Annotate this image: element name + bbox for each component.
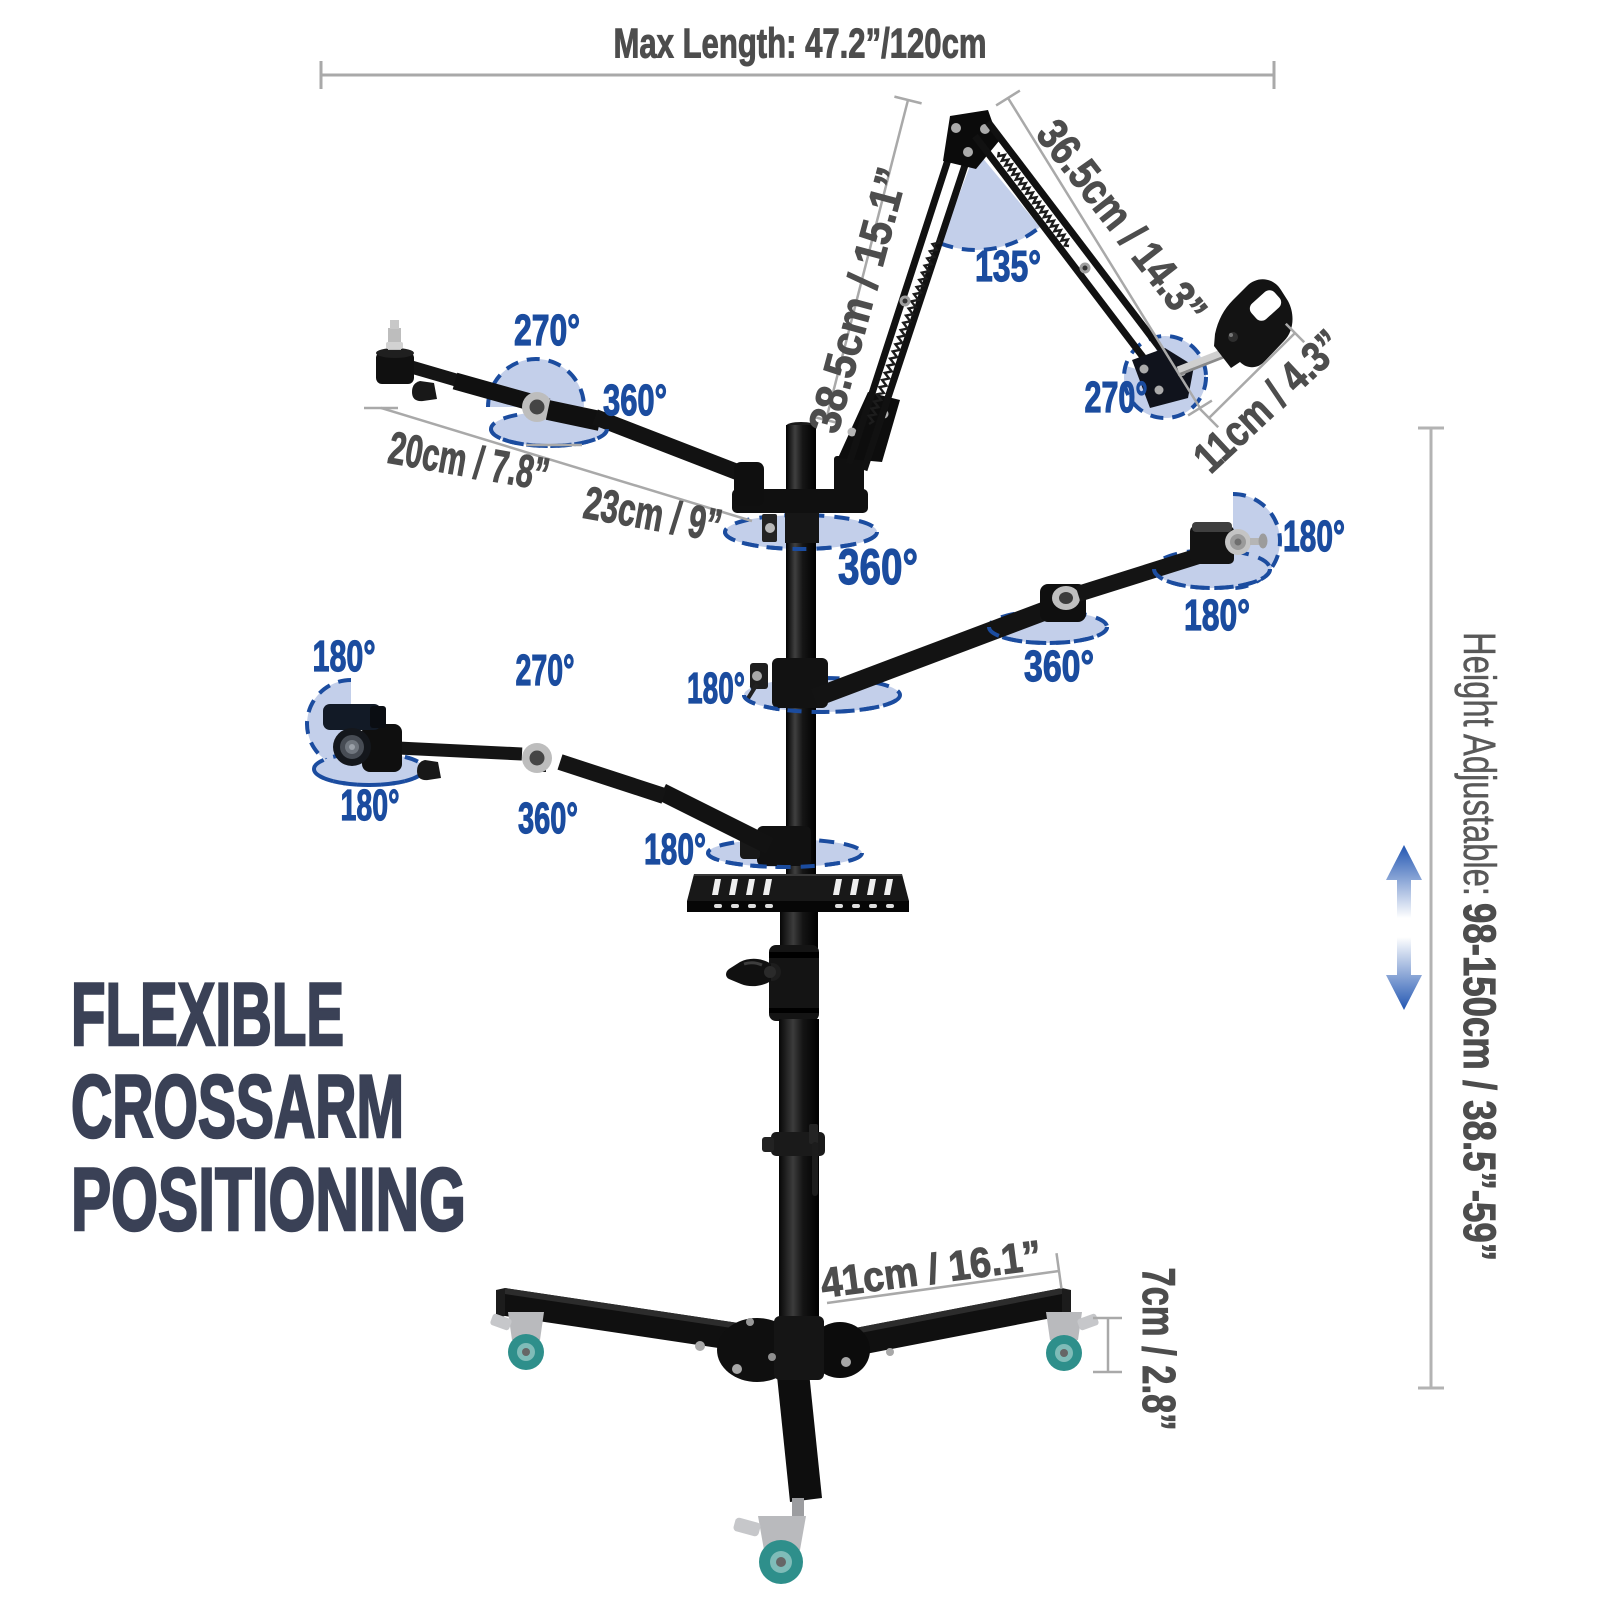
svg-text:98-150cm / 38.5”-59”: 98-150cm / 38.5”-59”	[1454, 903, 1505, 1261]
svg-text:180°: 180°	[313, 632, 376, 681]
svg-text:180°: 180°	[1283, 512, 1345, 561]
svg-text:360°: 360°	[838, 539, 918, 595]
svg-text:135°: 135°	[975, 242, 1041, 291]
svg-text:CROSSARM: CROSSARM	[71, 1056, 404, 1156]
svg-text:360°: 360°	[603, 376, 667, 425]
svg-text:FLEXIBLE: FLEXIBLE	[71, 964, 344, 1064]
svg-text:Max Length: 47.2”/120cm: Max Length: 47.2”/120cm	[614, 19, 987, 66]
svg-text:180°: 180°	[687, 664, 745, 713]
svg-text:7cm / 2.8”: 7cm / 2.8”	[1133, 1268, 1185, 1431]
svg-text:Height Adjustable:: Height Adjustable:	[1454, 632, 1505, 896]
svg-text:POSITIONING: POSITIONING	[71, 1149, 466, 1249]
svg-text:180°: 180°	[1184, 591, 1250, 640]
svg-text:270°: 270°	[514, 306, 580, 355]
svg-text:180°: 180°	[341, 781, 400, 830]
svg-text:180°: 180°	[644, 825, 706, 874]
svg-text:360°: 360°	[1024, 642, 1094, 691]
svg-text:360°: 360°	[518, 794, 578, 843]
svg-text:270°: 270°	[1085, 373, 1148, 422]
svg-text:270°: 270°	[516, 646, 575, 695]
